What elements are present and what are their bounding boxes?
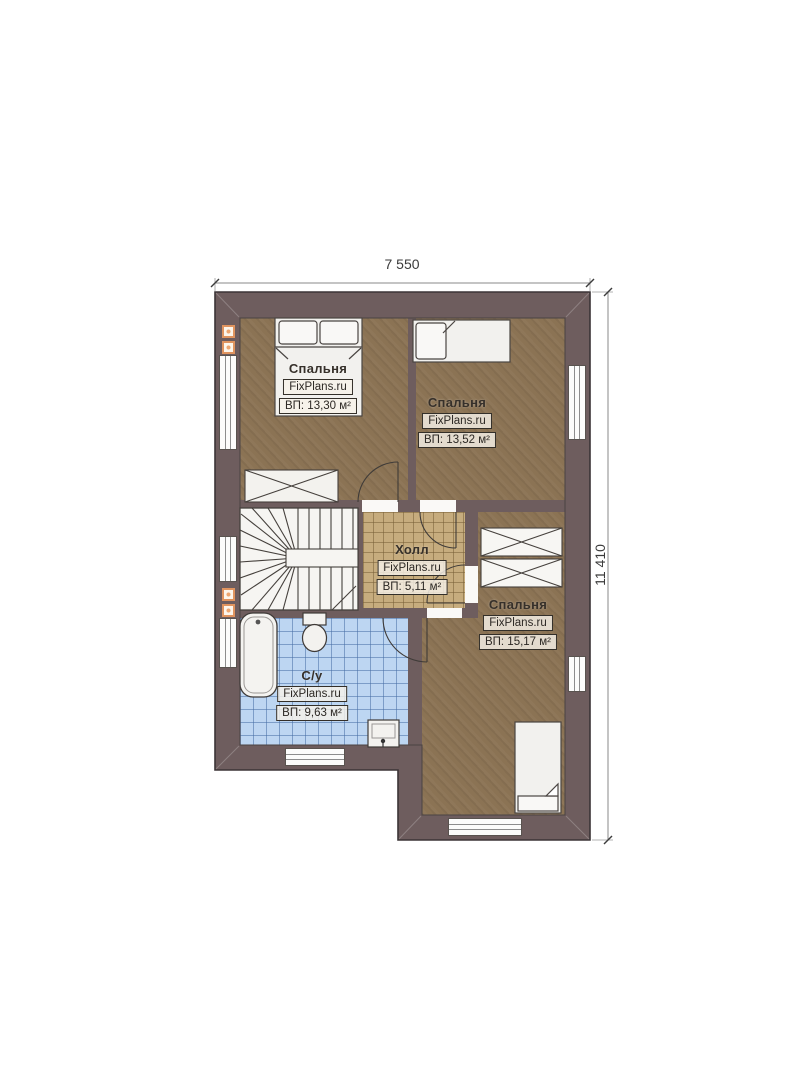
dimension-line-top (211, 278, 594, 291)
room-name: Спальня (428, 395, 486, 410)
room-brand-watermark: FixPlans.ru (283, 379, 353, 395)
wall-hall-left (355, 512, 363, 608)
room-brand-watermark: FixPlans.ru (277, 686, 347, 702)
room-area: ВП: 15,17 м² (479, 634, 557, 650)
window-right-bottom (568, 656, 586, 692)
window-right-top (568, 365, 586, 440)
door-opening-bedroom-right (465, 566, 478, 603)
dimension-height-label: 11 410 (592, 544, 608, 586)
room-label-bedroom-right: Спальня FixPlans.ru ВП: 15,17 м² (479, 597, 557, 650)
vent-icon (222, 341, 235, 354)
room-label-bedroom-top-right: Спальня FixPlans.ru ВП: 13,52 м² (418, 395, 496, 448)
door-opening-bedroom-tl (362, 500, 398, 512)
vent-icon (222, 604, 235, 617)
room-name: Спальня (289, 361, 347, 376)
room-area: ВП: 9,63 м² (276, 705, 348, 721)
wall-hall-top (240, 500, 590, 512)
window-left-middle (219, 536, 237, 582)
room-name: Спальня (489, 597, 547, 612)
room-brand-watermark: FixPlans.ru (377, 560, 447, 576)
window-bottom-left (285, 748, 345, 766)
vent-icon (222, 588, 235, 601)
wall-between-top-bedrooms (408, 318, 416, 512)
room-label-hall: Холл FixPlans.ru ВП: 5,11 м² (377, 542, 448, 595)
door-opening-bedroom-tr (420, 500, 456, 512)
room-brand-watermark: FixPlans.ru (483, 615, 553, 631)
window-left-bottom (219, 618, 237, 668)
window-bottom-right (448, 818, 522, 836)
door-opening-bathroom (427, 608, 462, 618)
room-label-bathroom: С/у FixPlans.ru ВП: 9,63 м² (276, 668, 348, 721)
room-name: Холл (395, 542, 429, 557)
room-name: С/у (301, 668, 322, 683)
wall-bathroom-right (408, 618, 422, 770)
floor-plan-page: 7 550 11 410 Спальня FixPlans.ru ВП: 13,… (0, 0, 792, 1080)
room-area: ВП: 13,52 м² (418, 432, 496, 448)
window-left-top (219, 355, 237, 450)
dimension-width-label: 7 550 (384, 256, 419, 272)
vent-icon (222, 325, 235, 338)
room-area: ВП: 5,11 м² (377, 579, 448, 595)
room-brand-watermark: FixPlans.ru (422, 413, 492, 429)
room-label-bedroom-top-left: Спальня FixPlans.ru ВП: 13,30 м² (279, 361, 357, 414)
room-area: ВП: 13,30 м² (279, 398, 357, 414)
